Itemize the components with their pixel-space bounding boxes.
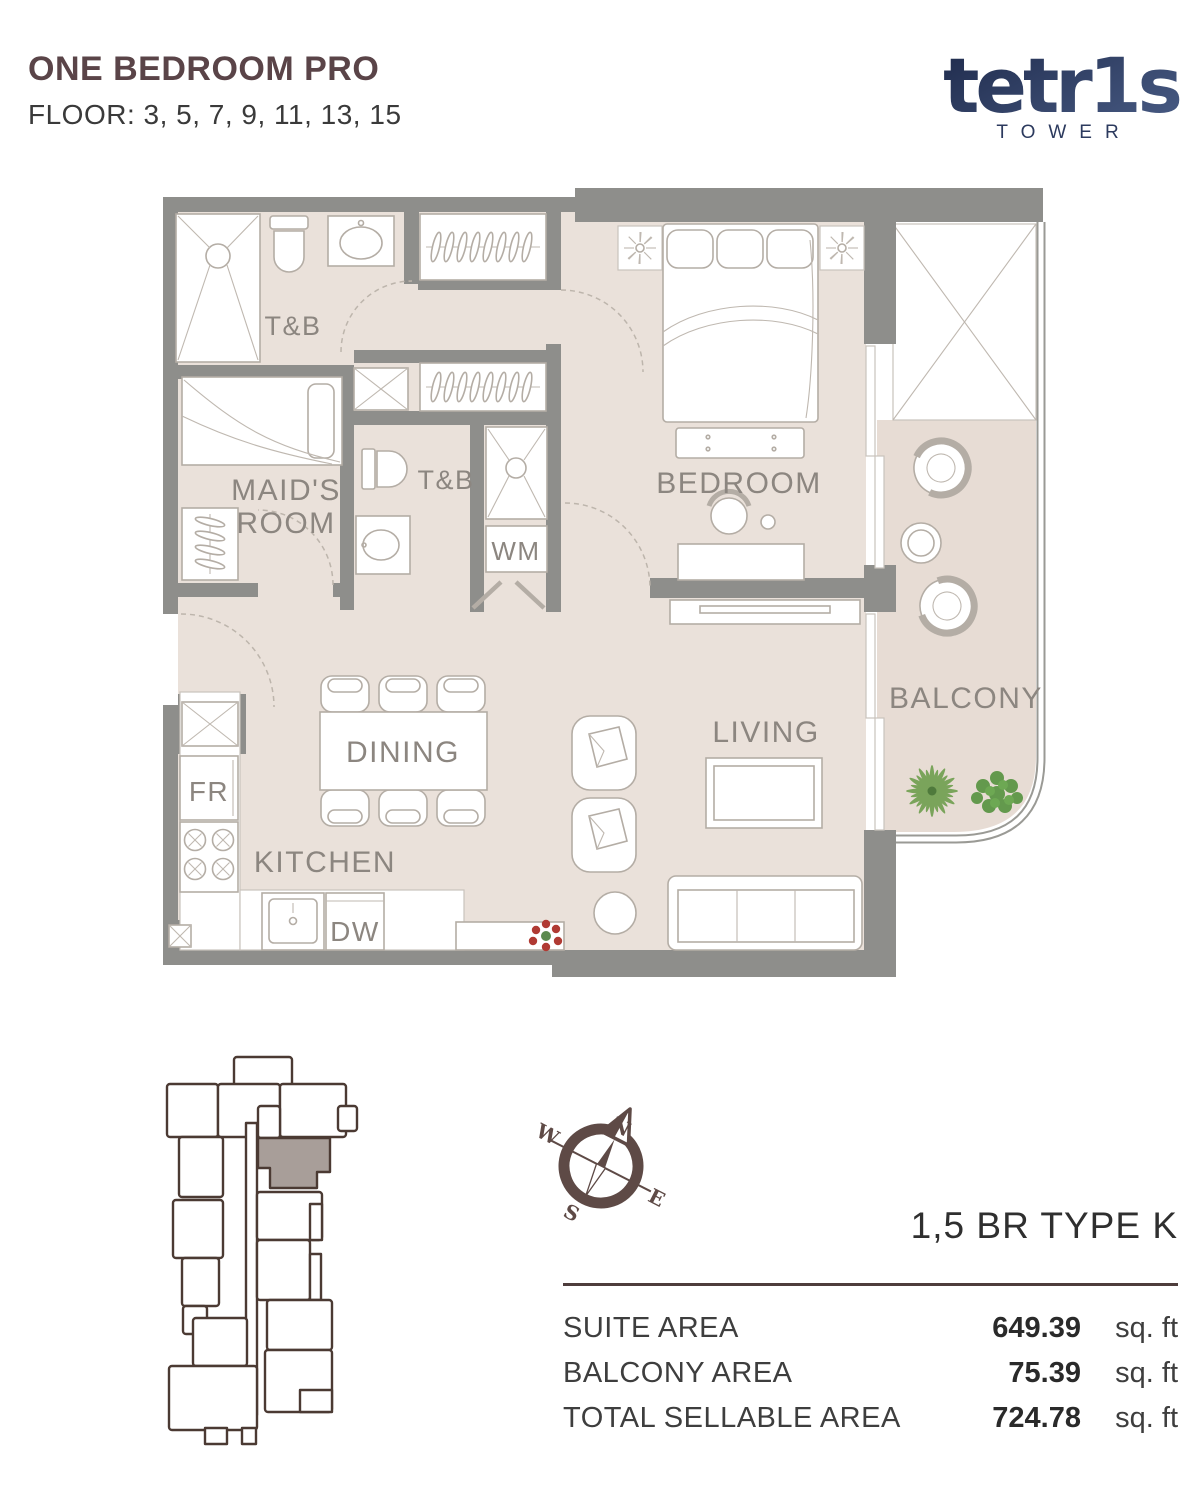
page-title: ONE BEDROOM PRO bbox=[28, 50, 402, 89]
area-row: TOTAL SELLABLE AREA 724.78 sq. ft bbox=[563, 1396, 1178, 1441]
sink-icon bbox=[328, 216, 394, 266]
area-unit: sq. ft bbox=[1081, 1402, 1178, 1435]
area-row: BALCONY AREA 75.39 sq. ft bbox=[563, 1351, 1178, 1396]
floor-list: FLOOR: 3, 5, 7, 9, 11, 13, 15 bbox=[28, 99, 402, 131]
key-plan-highlight bbox=[258, 1138, 330, 1188]
ceiling-light-icon bbox=[618, 226, 662, 270]
brand-logo: tetr1s TOWER bbox=[920, 24, 1190, 149]
shaft-icon bbox=[169, 925, 191, 947]
room-label-maids-2: ROOM bbox=[236, 507, 335, 540]
room-label-wm: WM bbox=[491, 536, 540, 566]
shaft-icon bbox=[354, 368, 408, 410]
floorplan-sheet: T&B MAID'S ROOM T&B WM BEDROOM BALCONY D… bbox=[0, 0, 1200, 1509]
coffee-table-icon bbox=[706, 758, 822, 828]
area-value: 649.39 bbox=[951, 1312, 1081, 1345]
bed-bench-icon bbox=[676, 428, 804, 458]
area-label: BALCONY AREA bbox=[563, 1357, 951, 1390]
sofa-icon bbox=[668, 876, 862, 950]
closet-icon bbox=[420, 214, 546, 280]
ac-ledge bbox=[893, 224, 1036, 420]
room-label-fridge: FR bbox=[189, 776, 229, 807]
maid-bed-icon bbox=[182, 377, 342, 465]
room-label-kitchen: KITCHEN bbox=[254, 846, 396, 879]
area-unit: sq. ft bbox=[1081, 1357, 1178, 1390]
bed-icon bbox=[663, 224, 818, 422]
area-value: 75.39 bbox=[951, 1357, 1081, 1390]
closet-icon bbox=[182, 508, 238, 580]
sink-icon bbox=[356, 516, 410, 574]
stove-icon bbox=[180, 822, 238, 892]
logo-wordmark: tetr1s bbox=[943, 41, 1180, 130]
room-label-bedroom: BEDROOM bbox=[656, 467, 822, 500]
side-table-icon bbox=[594, 892, 636, 934]
shower-icon bbox=[176, 214, 260, 362]
room-label-balcony: BALCONY bbox=[889, 682, 1043, 715]
room-label-tb-mid: T&B bbox=[417, 465, 474, 495]
tv-console-icon bbox=[670, 600, 860, 624]
toilet-icon bbox=[362, 449, 407, 489]
shower-icon bbox=[486, 427, 547, 519]
unit-type: 1,5 BR TYPE K bbox=[563, 1205, 1178, 1247]
room-label-dishwasher: DW bbox=[330, 916, 380, 947]
area-value: 724.78 bbox=[951, 1402, 1081, 1435]
area-unit: sq. ft bbox=[1081, 1312, 1178, 1345]
area-label: SUITE AREA bbox=[563, 1312, 951, 1345]
balcony-table-icon bbox=[901, 523, 941, 563]
room-label-maids-1: MAID'S bbox=[231, 474, 341, 507]
area-row: SUITE AREA 649.39 sq. ft bbox=[563, 1306, 1178, 1351]
toilet-icon bbox=[270, 216, 308, 272]
logo-subtitle: TOWER bbox=[996, 122, 1131, 143]
desk-icon bbox=[678, 544, 804, 580]
kitchen-sink-icon bbox=[262, 893, 324, 950]
room-label-tb-top: T&B bbox=[264, 311, 321, 341]
ceiling-light-icon bbox=[820, 226, 864, 270]
shaft-icon bbox=[182, 702, 238, 746]
key-plan bbox=[167, 1057, 357, 1444]
header: ONE BEDROOM PRO FLOOR: 3, 5, 7, 9, 11, 1… bbox=[28, 50, 402, 131]
area-label: TOTAL SELLABLE AREA bbox=[563, 1402, 951, 1435]
unit-summary: 1,5 BR TYPE K SUITE AREA 649.39 sq. ft B… bbox=[563, 1205, 1178, 1441]
entry-opening bbox=[163, 614, 178, 705]
room-label-living: LIVING bbox=[712, 716, 819, 749]
divider bbox=[563, 1283, 1178, 1286]
room-label-dining: DINING bbox=[346, 736, 460, 769]
closet-icon bbox=[420, 363, 546, 411]
